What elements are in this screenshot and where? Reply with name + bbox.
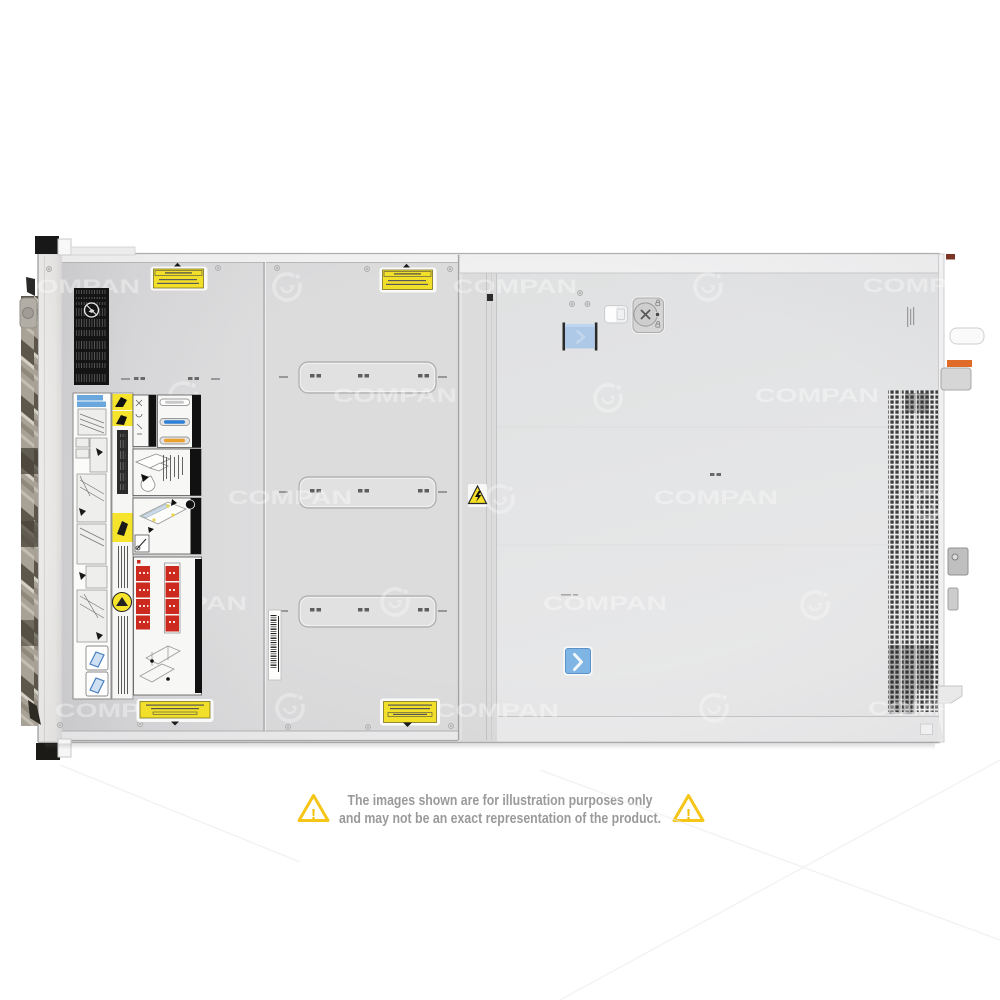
svg-text:COMPAN: COMPAN <box>435 701 559 722</box>
svg-text:COMPAN: COMPAN <box>654 488 778 509</box>
svg-text:COMPAN: COMPAN <box>543 594 667 615</box>
svg-text:and may not be an exact repres: and may not be an exact representation o… <box>339 810 661 827</box>
svg-text:COMPAN: COMPAN <box>333 386 457 407</box>
svg-text:COMPAN: COMPAN <box>755 386 879 407</box>
svg-text:COMPAN: COMPAN <box>868 699 992 720</box>
svg-text:COMPAN: COMPAN <box>863 276 987 297</box>
svg-text:!: ! <box>311 806 316 823</box>
svg-text:COMPAN: COMPAN <box>453 277 577 298</box>
svg-text:COMPAN: COMPAN <box>228 488 352 509</box>
svg-text:!: ! <box>686 806 691 823</box>
